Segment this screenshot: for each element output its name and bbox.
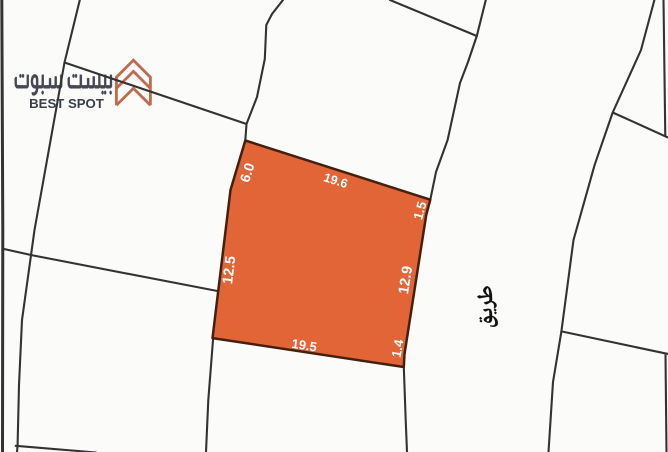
- svg-text:12.5: 12.5: [220, 255, 239, 285]
- svg-text:BEST SPOT: BEST SPOT: [29, 96, 104, 111]
